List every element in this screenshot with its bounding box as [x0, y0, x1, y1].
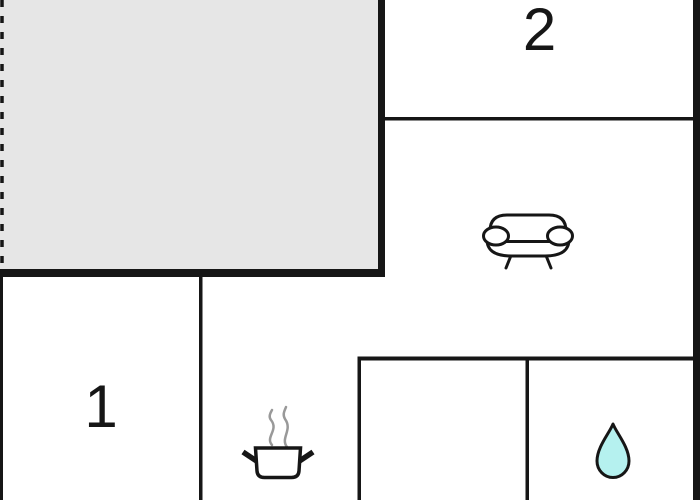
wall-terrace-right — [378, 0, 385, 277]
sofa-arm-left — [484, 227, 509, 245]
steam-wisp-left — [270, 410, 274, 445]
sofa-icon — [484, 215, 573, 268]
wall-bathroom-left — [526, 357, 530, 500]
steaming-pot-icon — [243, 407, 313, 478]
wall-bottommiddle-left — [358, 357, 362, 500]
pot-body — [256, 448, 301, 478]
wall-room1-kitchen — [199, 277, 203, 500]
water-drop-icon — [597, 424, 629, 478]
room-2-label: 2 — [386, 0, 693, 60]
terrace-area — [0, 0, 382, 273]
wall-room2-bottom — [385, 117, 693, 121]
wall-bottomrooms-top — [358, 357, 694, 361]
floor-plan: 2 1 — [0, 0, 700, 500]
wall-terrace-bottom — [0, 269, 385, 277]
steam-wisp-right — [284, 407, 288, 447]
wall-outer-right — [693, 0, 700, 500]
terrace-fill — [0, 0, 382, 273]
steam-wisps — [270, 407, 288, 447]
room-1-label: 1 — [3, 377, 199, 437]
sofa-arm-right — [548, 227, 573, 245]
